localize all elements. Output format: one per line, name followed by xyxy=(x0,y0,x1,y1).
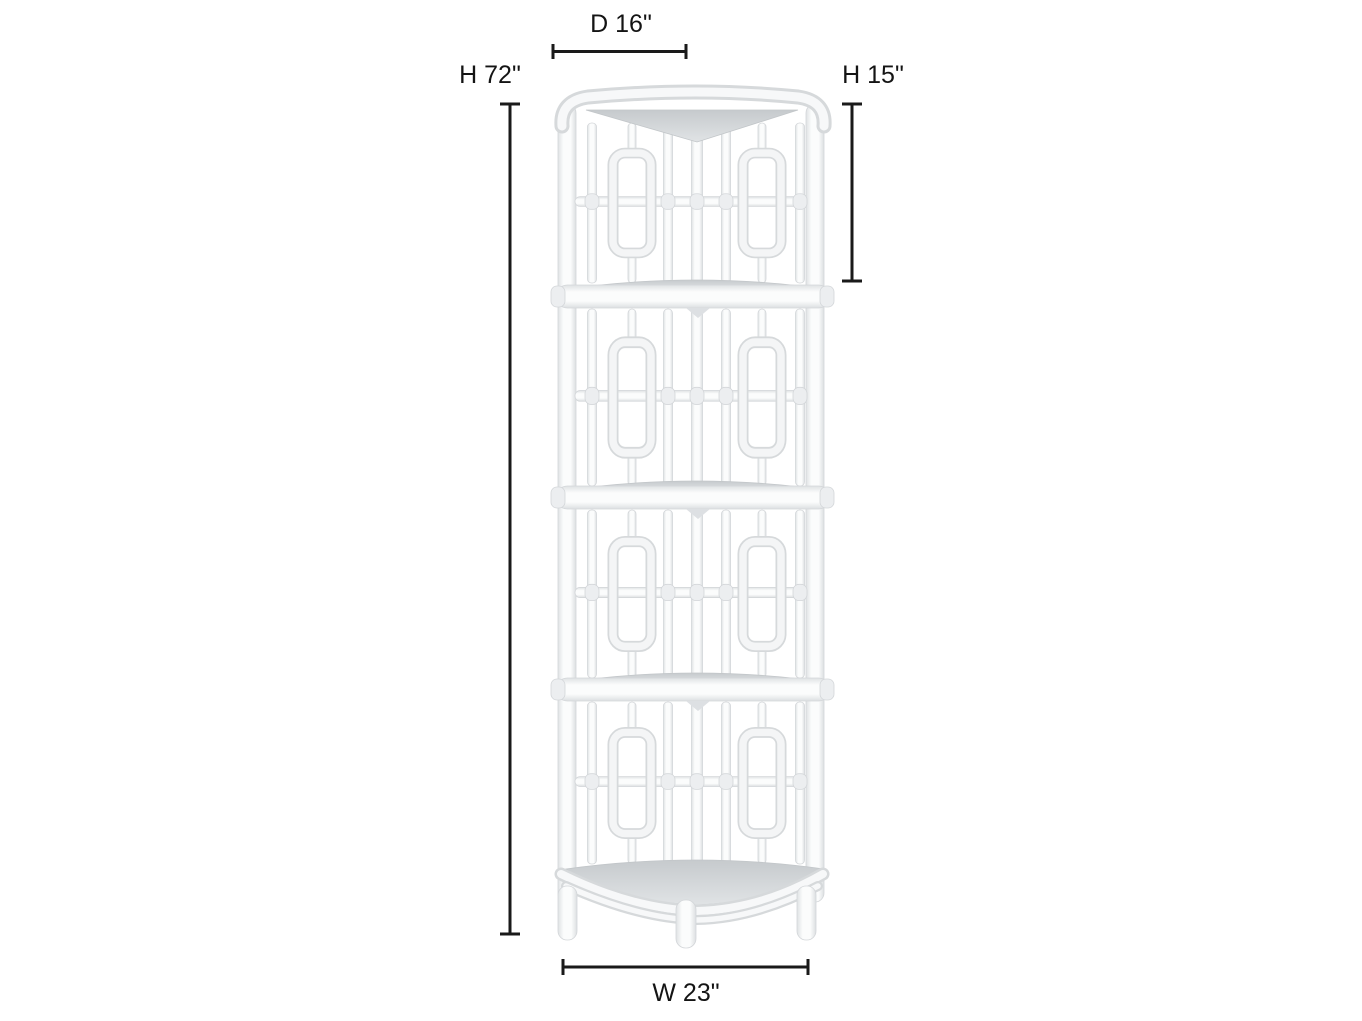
corner-shelf-diagram: D 16" H 72" H 15" W 23" xyxy=(0,0,1362,1021)
top-shelf xyxy=(562,92,824,142)
left-leg xyxy=(558,886,577,940)
width-dimension-label: W 23" xyxy=(652,979,719,1007)
lattice-section-4 xyxy=(575,702,807,864)
corner-shelf-illustration xyxy=(551,92,834,948)
lattice-section-3 xyxy=(575,510,807,678)
section-height-label: H 15" xyxy=(842,61,904,89)
lattice-section-2 xyxy=(575,309,807,486)
depth-dimension xyxy=(553,44,686,59)
overall-height-dimension xyxy=(500,104,520,934)
overall-height-label: H 72" xyxy=(459,61,521,89)
width-dimension xyxy=(563,959,808,975)
right-leg xyxy=(797,886,816,940)
product-dimension-diagram: D 16" H 72" H 15" W 23" xyxy=(0,0,1362,1021)
lattice-section-1 xyxy=(575,123,807,283)
depth-dimension-label: D 16" xyxy=(590,10,652,38)
center-leg xyxy=(676,900,696,948)
section-height-dimension xyxy=(842,104,862,281)
